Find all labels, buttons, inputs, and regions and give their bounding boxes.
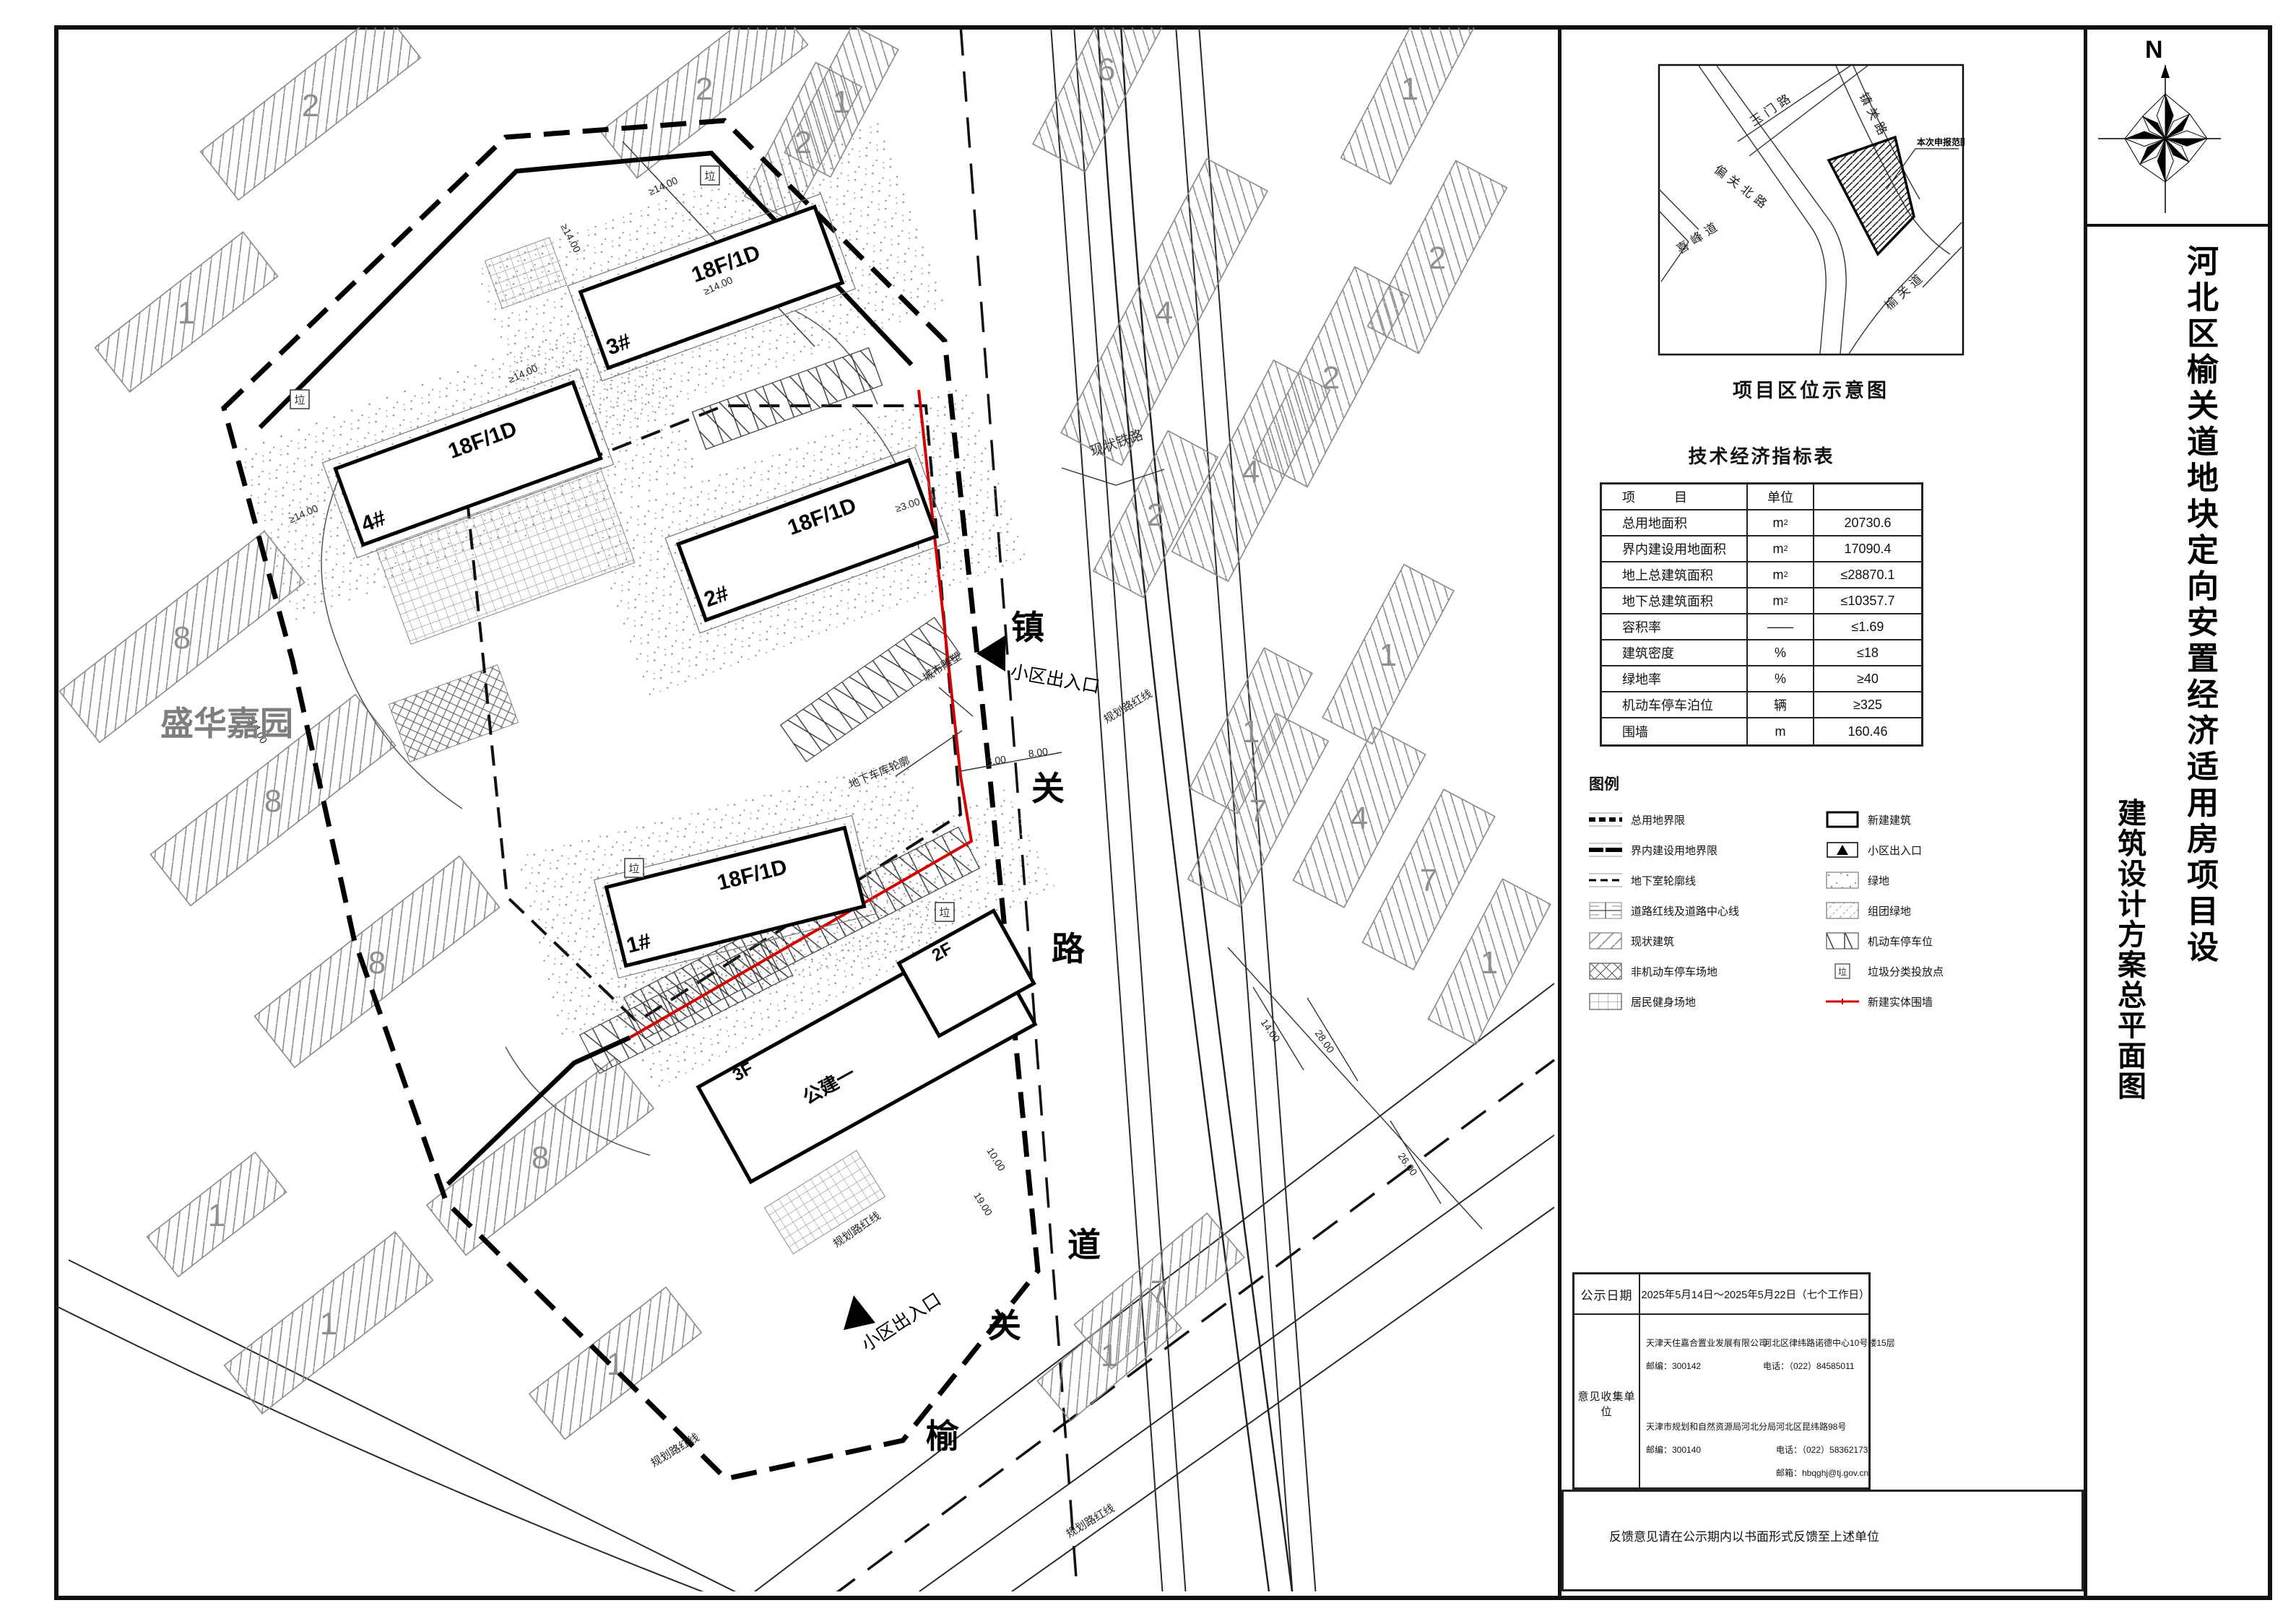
- plan-label: 关: [988, 1307, 1021, 1344]
- org1-zip: 邮编：300142: [1646, 1360, 1701, 1372]
- existing-building-floors: 1: [1242, 714, 1260, 749]
- legend-item-label: 绿地: [1868, 873, 1889, 888]
- unit-cell: 辆: [1748, 692, 1814, 718]
- legend-item: 居民健身场地: [1589, 986, 1806, 1017]
- title-char: 总: [2115, 981, 2149, 1011]
- legend-item: 界内建设用地界限: [1589, 835, 1806, 865]
- indicator-row: 围墙m160.46: [1602, 718, 1921, 744]
- unit-cell: m2: [1748, 536, 1814, 562]
- existing-building-floors: 2: [302, 88, 319, 123]
- existing-building-floors: 1: [320, 1306, 337, 1342]
- title-char: 案: [2115, 950, 2149, 981]
- project-title-line2: 建筑设计方案总平面图: [2115, 799, 2149, 1102]
- indicator-row: 机动车停车泊位辆≥325: [1602, 692, 1921, 718]
- road-redline-icon: [1589, 901, 1622, 920]
- item-cell: 界内建设用地面积: [1602, 536, 1748, 562]
- legend-item-label: 小区出入口: [1868, 843, 1922, 858]
- indicator-row: 界内建设用地面积m217090.4: [1602, 536, 1921, 562]
- title-char: 房: [2185, 822, 2220, 858]
- item-cell: 围墙: [1602, 718, 1748, 744]
- indicator-row: 容积率——≤1.69: [1602, 614, 1921, 640]
- plan-label: 路: [1052, 930, 1086, 968]
- title-char: 道: [2185, 425, 2220, 461]
- title-char: 平: [2115, 1011, 2149, 1041]
- legend-item-label: 机动车停车位: [1868, 934, 1933, 949]
- unit-cell: 单位: [1748, 484, 1814, 510]
- title-char: 置: [2185, 641, 2220, 677]
- plan-label: 小区出入口: [1009, 661, 1101, 697]
- legend: 图例 总用地界限界内建设用地界限地下室轮廓线道路红线及道路中心线现状建筑非机动车…: [1589, 773, 2080, 1017]
- value-cell: ≤28870.1: [1814, 562, 1921, 588]
- cluster-green-icon: [1826, 901, 1859, 920]
- entrance-arrow-south: [844, 1295, 875, 1330]
- legend-item: 道路红线及道路中心线: [1589, 895, 1806, 926]
- title-char: 筑: [2115, 829, 2149, 859]
- item-cell: 地上总建筑面积: [1602, 562, 1748, 588]
- indicator-row: 绿地率%≥40: [1602, 666, 1921, 692]
- legend-item-label: 地下室轮廓线: [1631, 873, 1696, 888]
- legend-item-label: 现状建筑: [1631, 934, 1674, 949]
- existing-building-floors: 8: [173, 620, 191, 656]
- indicator-table: 项 目单位总用地面积m220730.6界内建设用地面积m217090.4地上总建…: [1600, 482, 1923, 747]
- org1-address: 河北区律纬路诺德中心10号楼15层: [1763, 1337, 1895, 1349]
- bike-parking-area: [389, 665, 518, 762]
- title-char: 安: [2185, 605, 2220, 641]
- org1-phone: 电话：（022）84585011: [1763, 1360, 1855, 1372]
- legend-item: 地下室轮廓线: [1589, 865, 1806, 895]
- title-char: 设: [2115, 859, 2149, 890]
- svg-text:垃: 垃: [294, 394, 305, 407]
- location-map: 本次申报范围玉门路镇关路偏关北路喜峰道榆关道: [1658, 64, 1964, 356]
- title-char: 方: [2115, 920, 2149, 950]
- publicity-note-row: 反馈意见请在公示期内以书面形式反馈至上述单位: [1561, 1490, 2084, 1591]
- plan-label: 榆: [926, 1417, 960, 1455]
- indicator-row: 总用地面积m220730.6: [1602, 510, 1921, 536]
- existing-building-floors: 1: [208, 1198, 225, 1233]
- location-map-title: 项目区位示意图: [1658, 375, 1964, 403]
- value-cell: ≤18: [1814, 640, 1921, 666]
- legend-item: 新建实体围墙: [1826, 986, 1944, 1017]
- item-cell: 项 目: [1602, 484, 1748, 510]
- value-cell: 160.46: [1814, 718, 1921, 744]
- legend-item: 绿地: [1826, 865, 1944, 895]
- title-char: 向: [2185, 569, 2220, 605]
- dimension-label: 8.00: [1028, 745, 1049, 760]
- publicity-orgs: 天津天住嘉合置业发展有限公司河北区律纬路诺德中心10号楼15层邮编：300142…: [1640, 1315, 1871, 1492]
- trash-point-icon: 垃: [1826, 962, 1859, 981]
- org2-name: 天津市规划和自然资源局河北分局: [1646, 1420, 1776, 1433]
- value-cell: ≤10357.7: [1814, 588, 1921, 614]
- value-cell: ≥40: [1814, 666, 1921, 692]
- publicity-date-label: 公示日期: [1574, 1274, 1640, 1315]
- dimension-label: ≥14.00: [646, 174, 680, 197]
- existing-building-icon: [1589, 931, 1622, 950]
- svg-text:垃: 垃: [704, 170, 715, 183]
- publicity-date-value: 2025年5月14日～2025年5月22日（七个工作日）: [1640, 1274, 1871, 1315]
- existing-building-floors: 2: [1147, 497, 1164, 533]
- unit-cell: %: [1748, 640, 1814, 666]
- publicity-table: 公示日期 2025年5月14日～2025年5月22日（七个工作日） 意见收集单位…: [1572, 1272, 1871, 1490]
- boundary-inner-icon: [1589, 840, 1622, 859]
- legend-item-label: 垃圾分类投放点: [1868, 964, 1944, 979]
- org2-phone: 电话：（022）58362173: [1776, 1443, 1868, 1456]
- title-char: 面: [2115, 1041, 2149, 1072]
- unit-cell: m: [1748, 718, 1814, 744]
- indicator-row: 地下总建筑面积m2≤10357.7: [1602, 588, 1921, 614]
- application-scope-label: 本次申报范围: [1917, 136, 1964, 147]
- svg-text:垃: 垃: [1838, 966, 1847, 977]
- title-char: 区: [2185, 316, 2220, 352]
- legend-item: 小区出入口: [1826, 835, 1944, 865]
- title-char: 目: [2185, 894, 2220, 930]
- value-cell: ≤1.69: [1814, 614, 1921, 640]
- existing-building-floors: 1: [1401, 71, 1418, 107]
- indicator-table-title: 技术经济指标表: [1600, 442, 1923, 469]
- item-cell: 容积率: [1602, 614, 1748, 640]
- north-arrow: N: [2094, 36, 2261, 217]
- plan-label: 道: [1067, 1226, 1101, 1264]
- legend-title: 图例: [1589, 773, 2080, 794]
- title-char: 榆: [2185, 352, 2220, 388]
- legend-item-label: 新建建筑: [1868, 812, 1911, 827]
- existing-building-floors: 8: [368, 945, 386, 981]
- indicator-row: 建筑密度%≤18: [1602, 640, 1921, 666]
- legend-item: 组团绿地: [1826, 895, 1944, 926]
- legend-item-label: 非机动车停车场地: [1631, 964, 1717, 979]
- title-char: 设: [2185, 930, 2220, 966]
- existing-building-floors: 4: [1242, 454, 1260, 490]
- legend-item-label: 界内建设用地界限: [1631, 843, 1717, 858]
- legend-item: 非机动车停车场地: [1589, 956, 1806, 986]
- unit-cell: m2: [1748, 562, 1814, 588]
- org2-zip: 邮编：300140: [1646, 1443, 1701, 1456]
- value-cell: 17090.4: [1814, 536, 1921, 562]
- legend-item: 新建建筑: [1826, 804, 1944, 835]
- project-title-line1: 河北区榆关道地块定向安置经济适用房项目设: [2185, 244, 2220, 966]
- value-cell: [1814, 484, 1921, 510]
- title-char: 建: [2115, 799, 2149, 829]
- unit-cell: m2: [1748, 588, 1814, 614]
- svg-text:垃: 垃: [628, 863, 639, 875]
- existing-building-floors: 1: [1481, 945, 1498, 981]
- legend-right-column: 新建建筑小区出入口绿地组团绿地机动车停车位垃垃圾分类投放点新建实体围墙: [1826, 804, 1944, 1017]
- existing-building-floors: 4: [1156, 295, 1173, 331]
- title-char: 适: [2185, 749, 2220, 786]
- legend-item: 总用地界限: [1589, 804, 1806, 835]
- entrance-icon: [1826, 840, 1859, 859]
- title-char: 经: [2185, 677, 2220, 713]
- new-wall-icon: [1826, 992, 1859, 1011]
- existing-building-floors: 2: [1429, 240, 1446, 276]
- publicity-unit-label: 意见收集单位: [1574, 1315, 1640, 1492]
- plan-label: 关: [1031, 770, 1065, 807]
- plan-label: 规划路红线: [1101, 687, 1154, 726]
- existing-building-floors: 2: [696, 71, 713, 107]
- dimension-label: 19.00: [971, 1190, 995, 1217]
- title-char: 定: [2185, 533, 2220, 569]
- plan-label: 规划路红线: [649, 1431, 701, 1469]
- unit-cell: %: [1748, 666, 1814, 692]
- legend-item-label: 道路红线及道路中心线: [1631, 903, 1739, 918]
- indicator-header-row: 项 目单位: [1602, 484, 1921, 510]
- north-letter: N: [2145, 36, 2163, 64]
- publicity-note: 反馈意见请在公示期内以书面形式反馈至上述单位: [1593, 1526, 1896, 1544]
- existing-building-floors: 7: [1420, 863, 1437, 898]
- title-char: 用: [2185, 786, 2220, 822]
- item-cell: 机动车停车泊位: [1602, 692, 1748, 718]
- existing-building-floors: 8: [264, 783, 282, 819]
- publicity-orgs-cell: 天津天住嘉合置业发展有限公司河北区律纬路诺德中心10号楼15层邮编：300142…: [1640, 1315, 1871, 1492]
- unit-cell: ——: [1748, 614, 1814, 640]
- title-char: 北: [2185, 280, 2220, 316]
- value-cell: ≥325: [1814, 692, 1921, 718]
- value-cell: 20730.6: [1814, 510, 1921, 536]
- title-char: 关: [2185, 388, 2220, 425]
- dimension-label: 8.00: [986, 753, 1007, 768]
- legend-item: 垃垃圾分类投放点: [1826, 956, 1944, 986]
- dimension-label: 10.00: [984, 1145, 1008, 1173]
- item-cell: 地下总建筑面积: [1602, 588, 1748, 614]
- title-char: 块: [2185, 497, 2220, 533]
- title-char: 地: [2185, 461, 2220, 497]
- existing-building-floors: 7: [1151, 1274, 1168, 1310]
- existing-building-floors: 7: [1249, 794, 1267, 829]
- item-cell: 建筑密度: [1602, 640, 1748, 666]
- org2-address: 河北区昆纬路98号: [1776, 1420, 1846, 1433]
- existing-building-floors: 1: [178, 295, 195, 331]
- title-char: 图: [2115, 1072, 2149, 1102]
- item-cell: 绿地率: [1602, 666, 1748, 692]
- plan-label: 镇: [1011, 609, 1044, 646]
- legend-left-column: 总用地界限界内建设用地界限地下室轮廓线道路红线及道路中心线现状建筑非机动车停车场…: [1589, 804, 1806, 1017]
- bike-parking-icon: [1589, 962, 1622, 981]
- car-parking-icon: [1826, 931, 1859, 950]
- unit-cell: m2: [1748, 510, 1814, 536]
- existing-building-floors: 8: [532, 1140, 549, 1175]
- dimension-label: 14.00: [1258, 1017, 1282, 1044]
- green-icon: [1826, 871, 1859, 890]
- existing-building-floors: 4: [1351, 801, 1368, 836]
- legend-item-label: 组团绿地: [1868, 903, 1911, 918]
- item-cell: 总用地面积: [1602, 510, 1748, 536]
- legend-item: 现状建筑: [1589, 926, 1806, 956]
- legend-item-label: 新建实体围墙: [1868, 994, 1933, 1009]
- org1-name: 天津天住嘉合置业发展有限公司: [1646, 1337, 1767, 1349]
- boundary-total-icon: [1589, 810, 1622, 829]
- title-char: 河: [2185, 244, 2220, 280]
- new-building-icon: [1826, 810, 1859, 829]
- title-char: 计: [2115, 890, 2149, 920]
- fitness-area-icon: [1589, 992, 1622, 1011]
- legend-item: 机动车停车位: [1826, 926, 1944, 956]
- org2-email: 邮箱：hbqghj@tj.gov.cn: [1776, 1466, 1868, 1479]
- basement-outline-icon: [1589, 871, 1622, 890]
- svg-text:垃: 垃: [939, 907, 950, 919]
- legend-item-label: 总用地界限: [1631, 812, 1685, 827]
- indicator-row: 地上总建筑面积m2≤28870.1: [1602, 562, 1921, 588]
- legend-item-label: 居民健身场地: [1631, 994, 1696, 1009]
- existing-building-floors: 6: [1098, 52, 1115, 87]
- dimension-label: 28.00: [1312, 1027, 1336, 1055]
- title-char: 济: [2185, 713, 2220, 749]
- existing-building-floors: 1: [1379, 638, 1397, 673]
- title-char: 项: [2185, 858, 2220, 894]
- plan-label: 盛华嘉园: [160, 705, 293, 742]
